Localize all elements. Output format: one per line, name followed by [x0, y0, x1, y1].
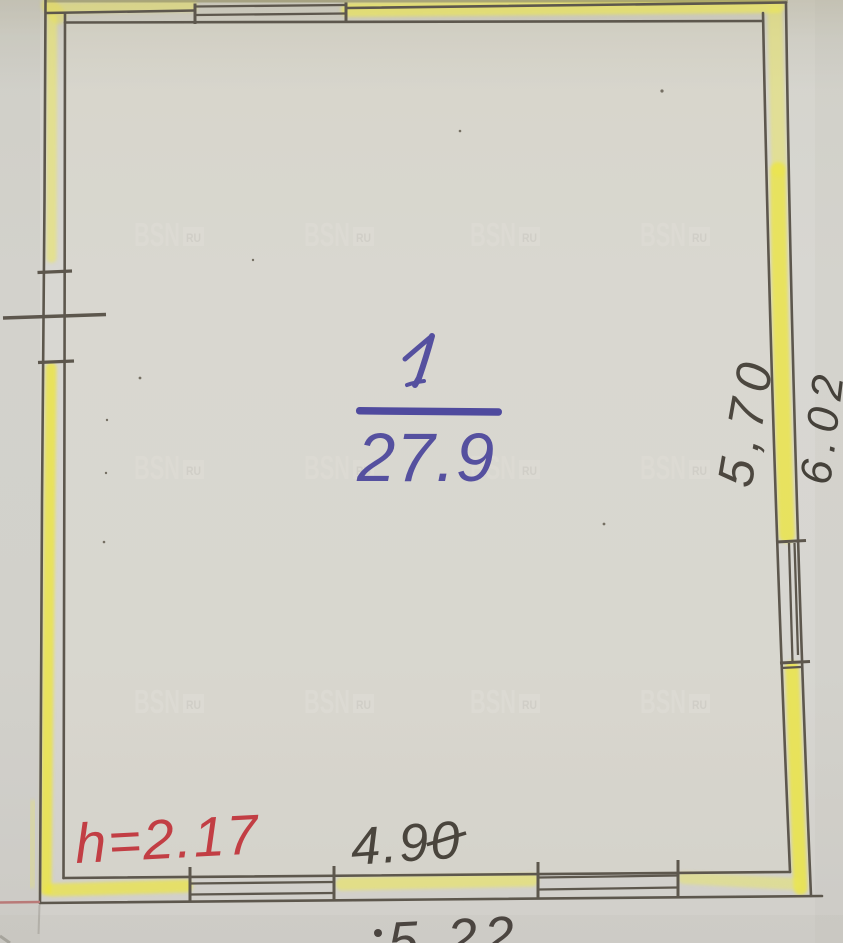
svg-text:27.9: 27.9 — [356, 419, 495, 496]
svg-text:h=2.17: h=2.17 — [73, 802, 261, 875]
svg-text:4.90: 4.90 — [349, 810, 464, 877]
svg-text:RU: RU — [186, 231, 201, 245]
svg-text:BSN: BSN — [134, 216, 180, 253]
